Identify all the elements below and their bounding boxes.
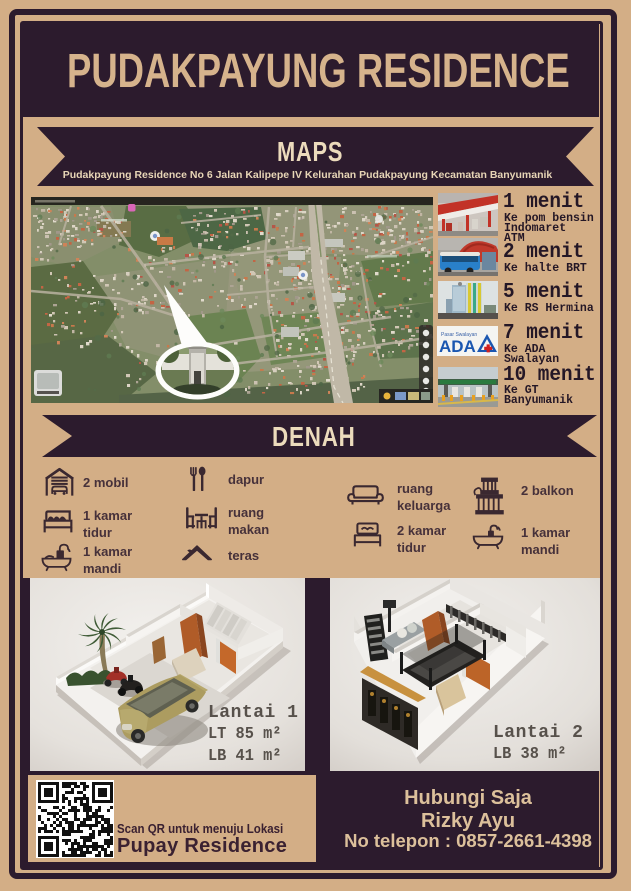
svg-text:ADA: ADA bbox=[439, 337, 476, 356]
